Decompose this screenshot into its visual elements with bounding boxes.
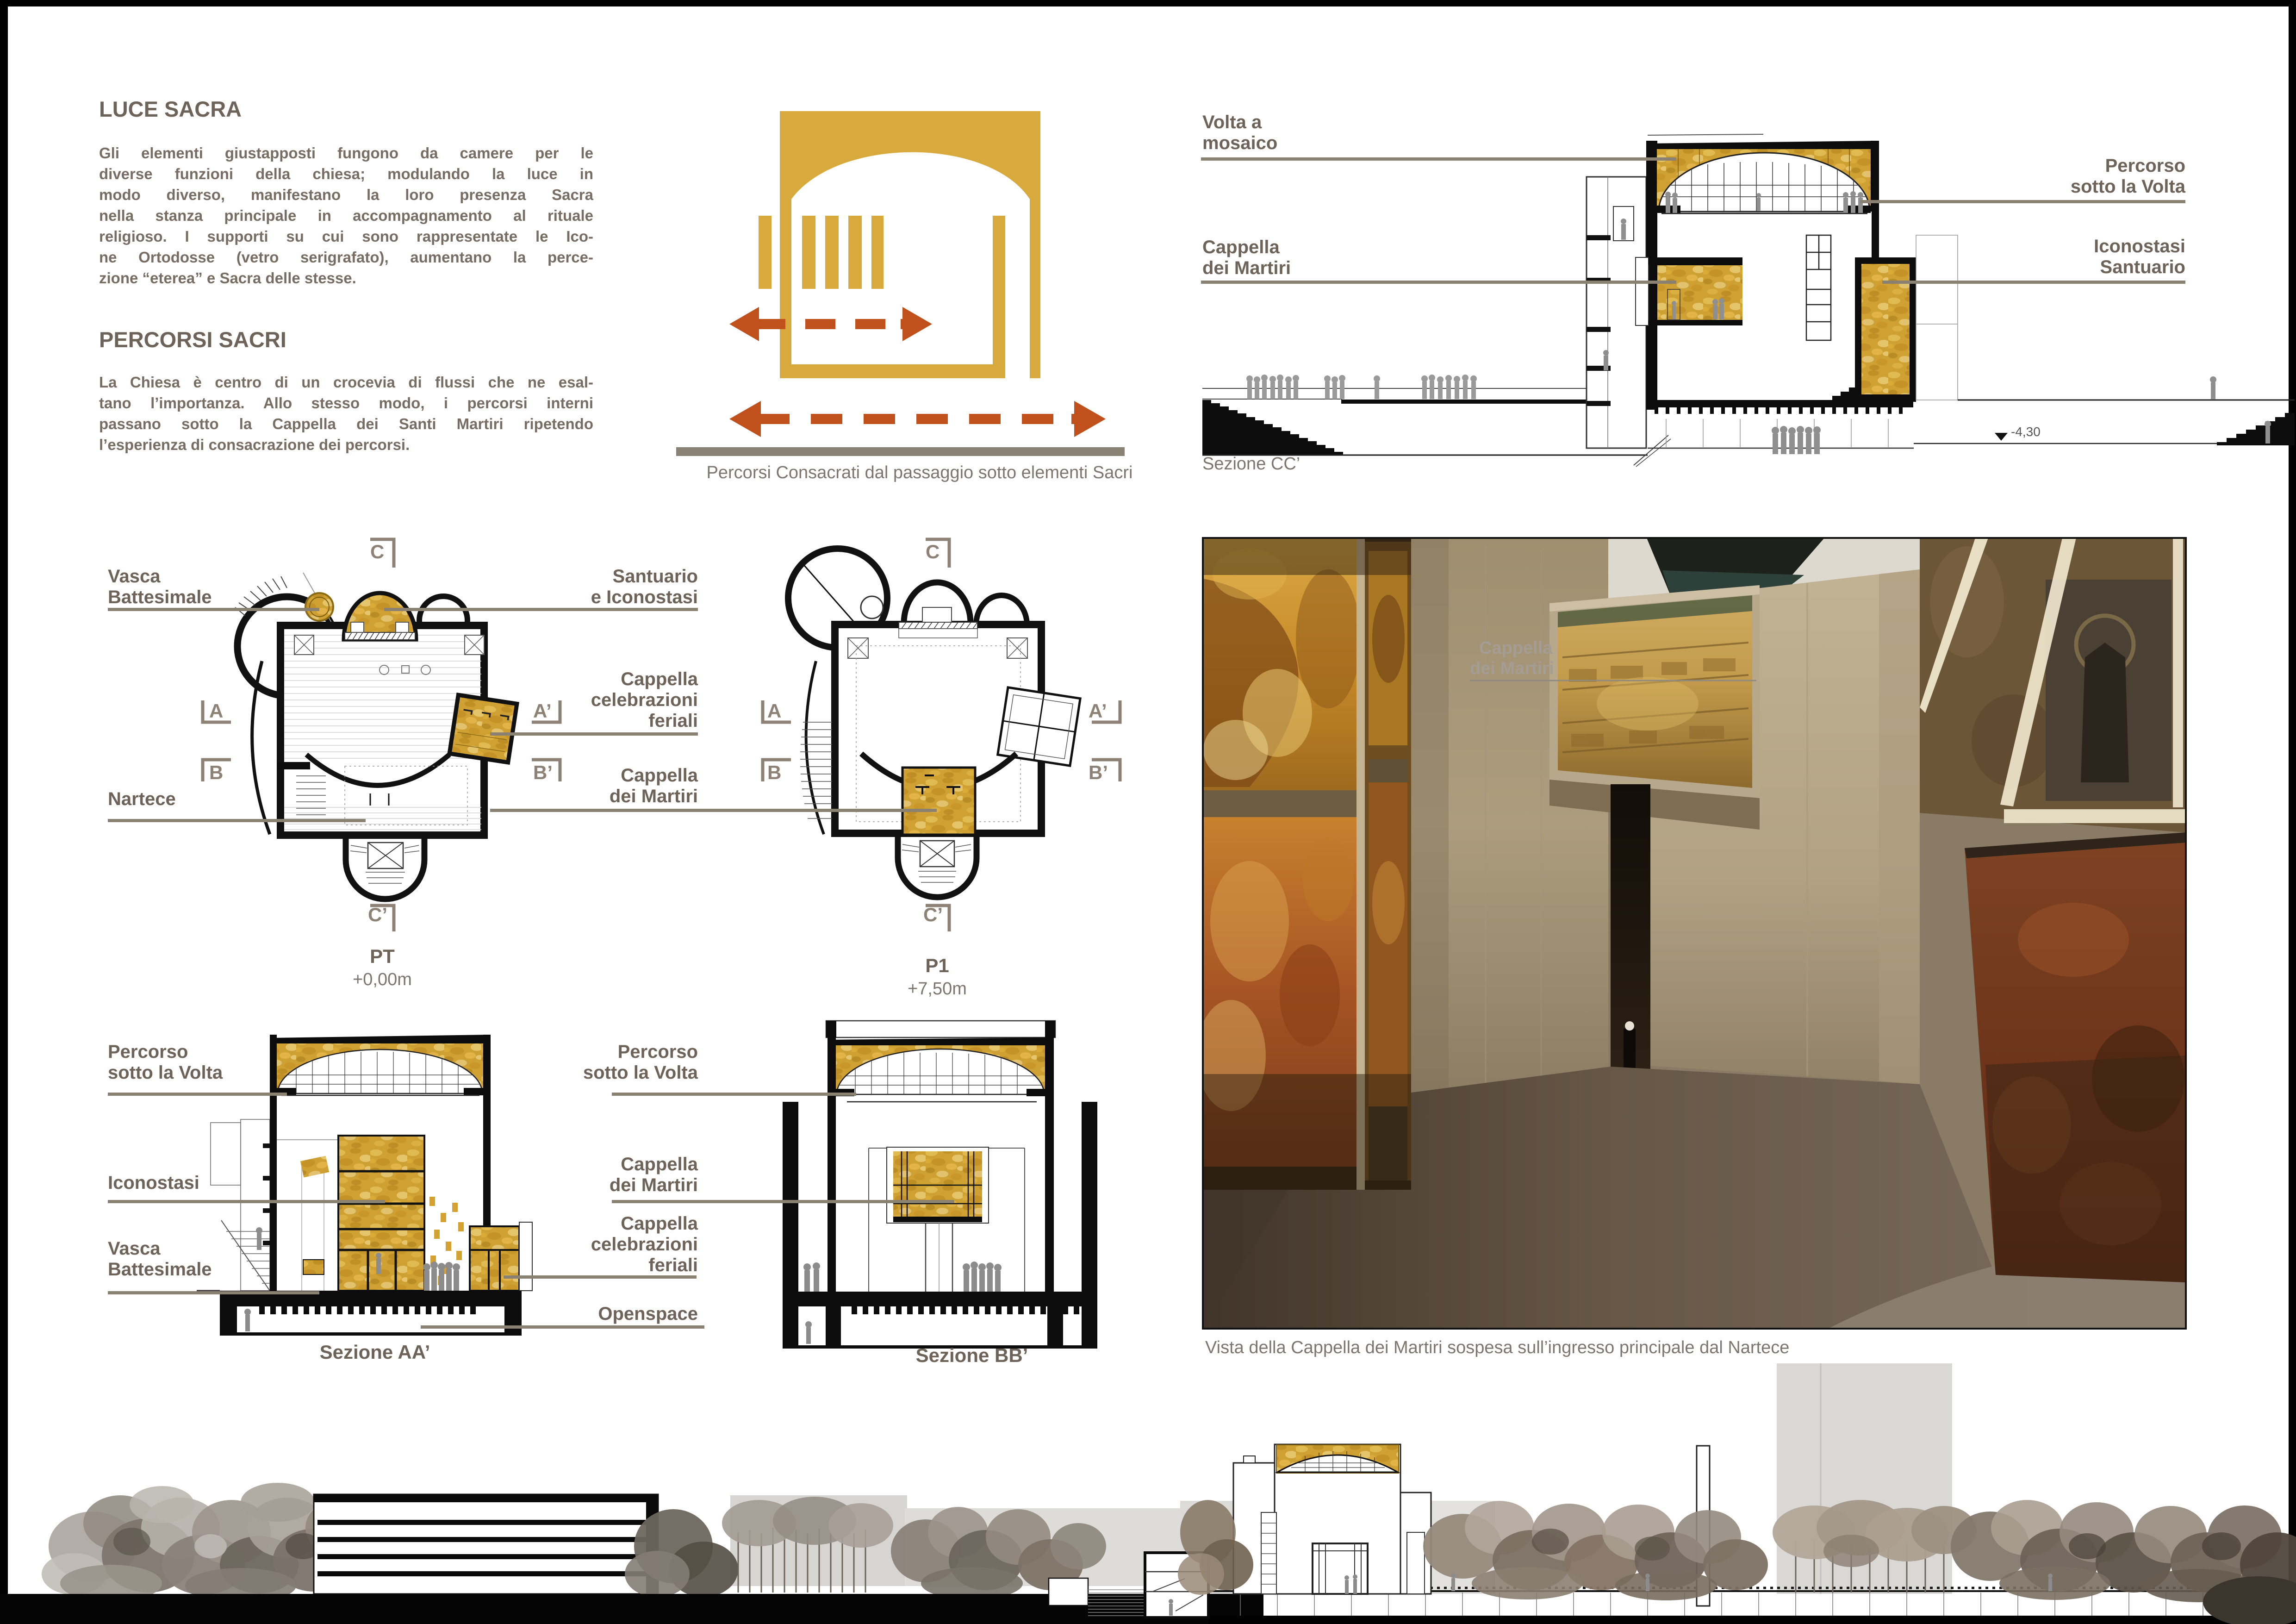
svg-text:Cappella: Cappella (1479, 638, 1553, 658)
svg-text:-4,30: -4,30 (2011, 425, 2041, 439)
svg-text:dei Martiri: dei Martiri (1470, 659, 1554, 678)
